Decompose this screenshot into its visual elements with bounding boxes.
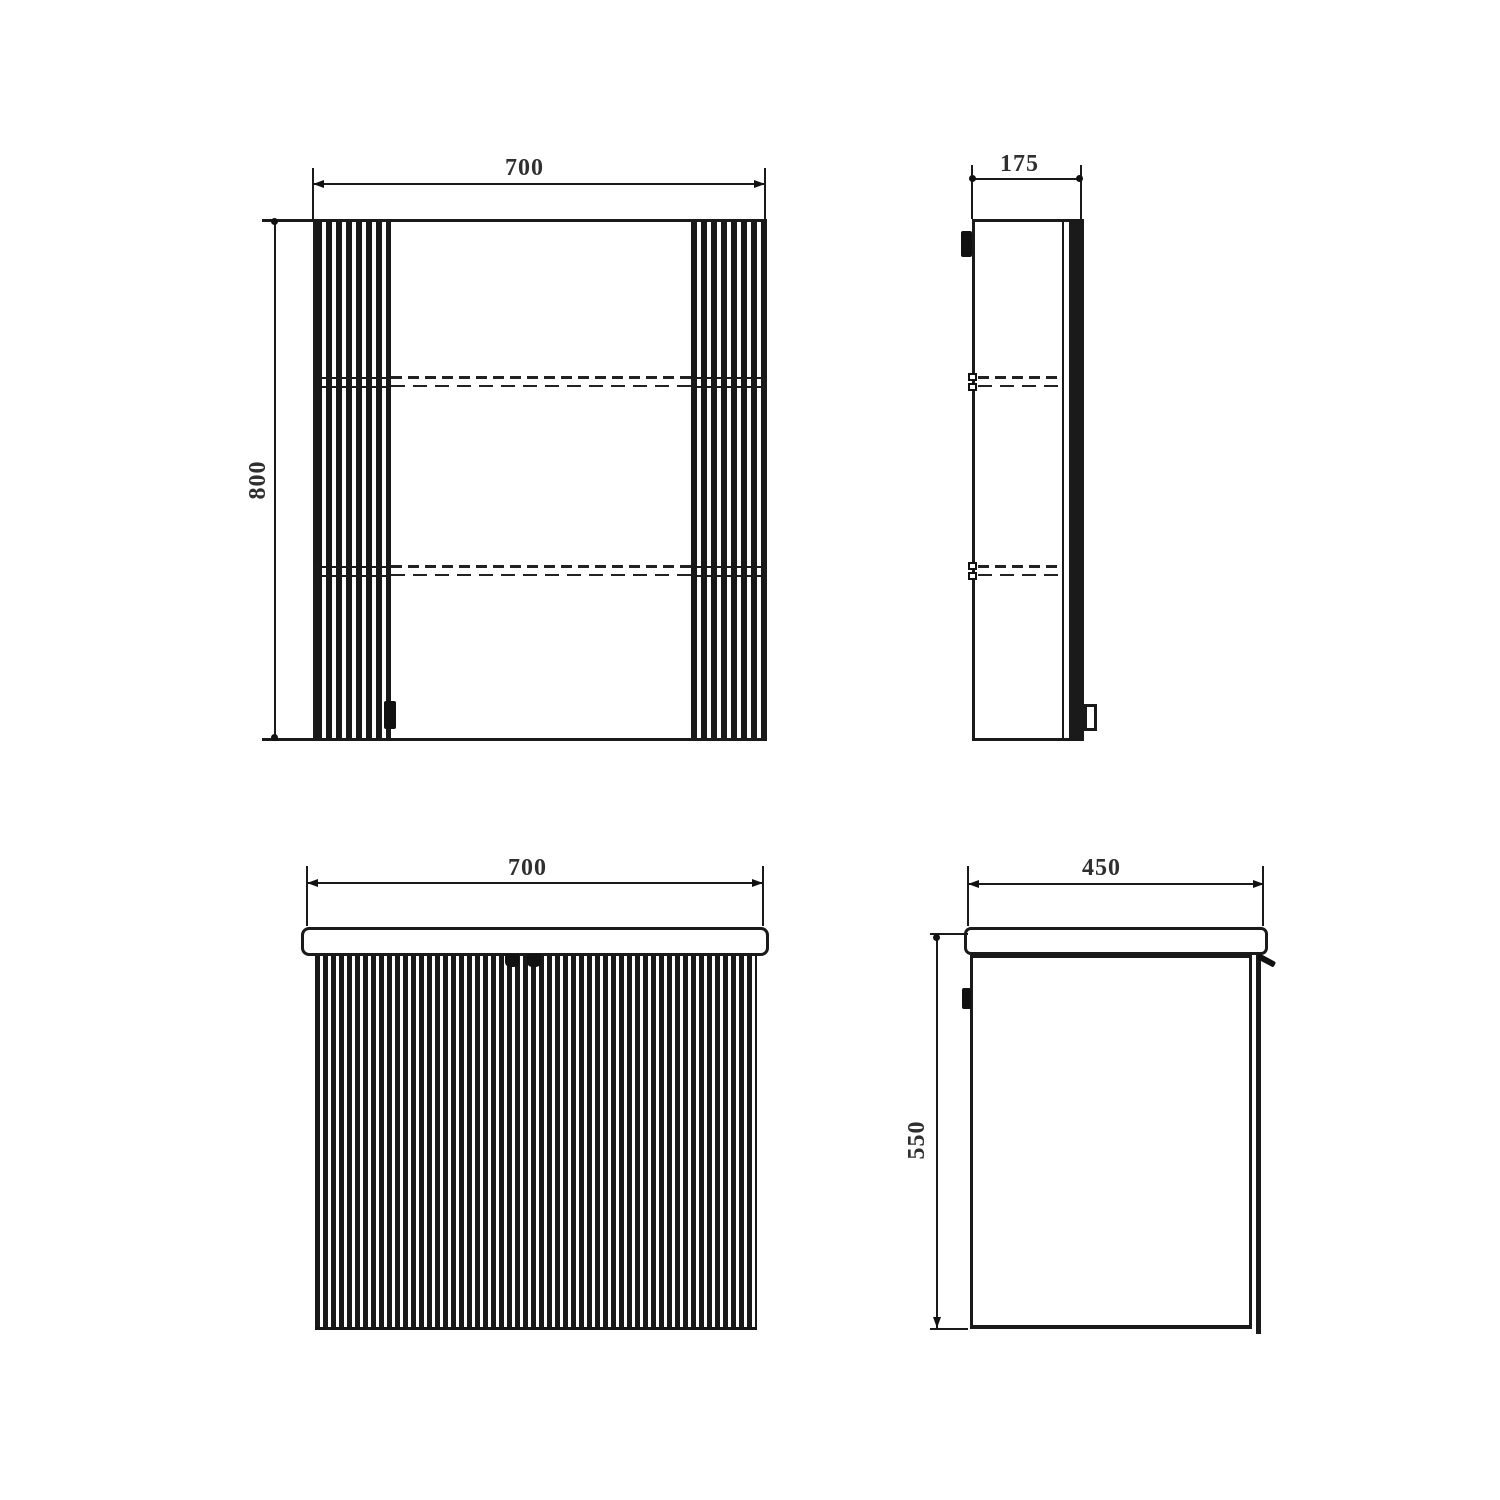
fluted-panel-right <box>691 222 764 738</box>
dim-label-vanity-width: 700 <box>508 856 547 880</box>
dimension-arrow <box>752 879 763 887</box>
extension-line <box>1262 866 1264 926</box>
vanity-door-handle-right <box>527 954 541 967</box>
shelf-pin <box>968 373 977 381</box>
dimension-line-width <box>313 183 765 185</box>
technical-drawing-canvas: 700 800 175 <box>0 0 1500 1500</box>
dimension-line-height <box>936 936 938 1328</box>
shelf-line-over-slats <box>691 377 764 379</box>
mirror-door-handle-side <box>1084 704 1097 731</box>
shelf-pin <box>968 383 977 391</box>
mirror-side-outline <box>972 219 1084 741</box>
wall-mount-bracket <box>961 231 972 257</box>
vanity-fluted-front <box>315 956 757 1330</box>
dim-label-mirror-depth: 175 <box>1000 152 1039 176</box>
shelf-line-over-slats <box>691 575 764 577</box>
extension-line <box>930 1328 968 1330</box>
dimension-dot <box>271 734 278 741</box>
extension-line <box>967 866 969 926</box>
dimension-dot <box>1076 175 1083 182</box>
extension-line <box>1080 165 1082 219</box>
dimension-line-width <box>307 882 763 884</box>
vanity-countertop <box>301 927 769 956</box>
shelf-line-over-slats <box>316 566 391 568</box>
extension-line <box>762 866 764 926</box>
shelf-dashed-line <box>391 574 691 576</box>
dimension-line-depth <box>972 178 1082 180</box>
dimension-arrow <box>313 180 324 188</box>
dimension-dot <box>969 175 976 182</box>
extension-line <box>306 866 308 926</box>
extension-line <box>262 738 315 741</box>
dimension-arrow <box>933 1317 941 1328</box>
shelf-dashed-line <box>391 565 691 568</box>
shelf-dashed-line <box>391 385 691 387</box>
mirror-door-handle <box>384 701 396 729</box>
dim-label-vanity-height: 550 <box>905 1115 929 1165</box>
shelf-line-over-slats <box>316 386 391 388</box>
extension-line <box>971 165 973 219</box>
shelf-pin <box>968 572 977 580</box>
mirror-door-inner-line <box>1062 222 1064 738</box>
vanity-side-outline <box>970 955 1252 1329</box>
dimension-arrow <box>754 180 765 188</box>
fluted-panel-left <box>316 222 391 738</box>
shelf-dashed-line <box>978 565 1062 568</box>
shelf-line-over-slats <box>316 377 391 379</box>
dimension-dot <box>271 218 278 225</box>
dimension-line-height <box>274 221 276 739</box>
shelf-dashed-line <box>978 574 1062 576</box>
shelf-dashed-line <box>978 376 1062 379</box>
shelf-pin <box>968 562 977 570</box>
dimension-line-depth <box>968 883 1264 885</box>
vanity-door-handle-left <box>505 954 519 967</box>
dimension-dot <box>933 934 940 941</box>
extension-line <box>262 219 315 222</box>
shelf-dashed-line <box>978 385 1062 387</box>
dimension-arrow <box>968 880 979 888</box>
dim-label-mirror-height: 800 <box>246 455 270 505</box>
extension-line <box>764 168 766 220</box>
dimension-arrow <box>307 879 318 887</box>
dim-label-vanity-depth: 450 <box>1082 856 1121 880</box>
dim-label-mirror-width: 700 <box>505 156 544 180</box>
vanity-door-edge <box>1256 955 1261 1334</box>
mirror-door-edge <box>1069 219 1084 741</box>
extension-line <box>312 168 314 220</box>
vanity-countertop-side <box>964 927 1268 955</box>
wall-mount-bracket <box>962 988 971 1009</box>
dimension-arrow <box>1253 880 1264 888</box>
shelf-dashed-line <box>391 376 691 379</box>
shelf-line-over-slats <box>691 566 764 568</box>
shelf-line-over-slats <box>316 575 391 577</box>
shelf-line-over-slats <box>691 386 764 388</box>
